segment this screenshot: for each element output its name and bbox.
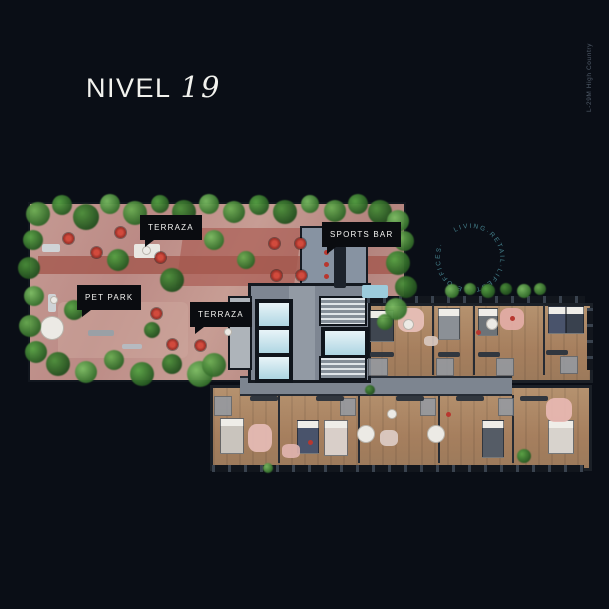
tree-icon bbox=[534, 283, 546, 295]
residences-south-wing bbox=[210, 385, 592, 471]
elevator bbox=[255, 353, 293, 383]
balcony-rail bbox=[367, 296, 585, 303]
presentation-canvas: NIVEL19 L-29M High Country LIVING·RETAIL… bbox=[0, 0, 609, 609]
stairs bbox=[319, 296, 367, 326]
label-tag-terraza-secondary: TERRAZA bbox=[190, 302, 252, 327]
floor-plan: TERRAZA SPORTS BAR PET PARK TERRAZA bbox=[0, 0, 609, 609]
balcony-rail bbox=[587, 308, 593, 370]
pet-park-area bbox=[58, 302, 188, 358]
label-tag-pet-park: PET PARK bbox=[77, 285, 141, 310]
building-core bbox=[248, 283, 371, 383]
elevator bbox=[321, 327, 369, 359]
residences-east-wing bbox=[365, 303, 593, 383]
tree-icon bbox=[500, 283, 512, 295]
label-tag-sports-bar: SPORTS BAR bbox=[322, 222, 401, 247]
tree-icon bbox=[464, 283, 476, 295]
stairs bbox=[319, 356, 367, 380]
balcony-rail bbox=[212, 465, 584, 472]
label-tag-terraza-main: TERRAZA bbox=[140, 215, 202, 240]
